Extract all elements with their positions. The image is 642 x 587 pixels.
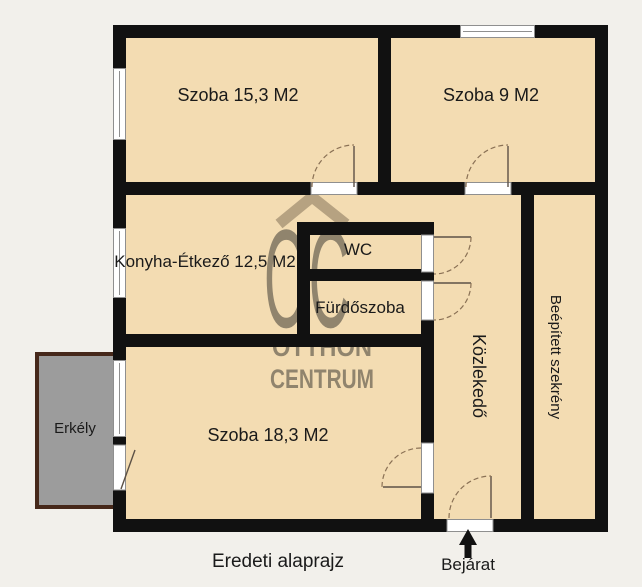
floorplan-image: OC OTTHON CENTRUM <box>0 0 642 587</box>
wall-wc-top <box>297 222 434 235</box>
entrance-label: Bejárat <box>441 555 495 574</box>
wall-kitchen-bedroom <box>126 334 434 347</box>
doorway-entrance <box>447 520 493 532</box>
room-label-szoba-153: Szoba 15,3 M2 <box>177 85 298 105</box>
room-label-erkely: Erkély <box>54 420 96 437</box>
doorway-room9 <box>465 183 511 195</box>
room-label-kozlekedo: Közlekedő <box>469 334 489 418</box>
doorway-room183 <box>422 443 434 493</box>
room-label-szoba-183: Szoba 18,3 M2 <box>207 425 328 445</box>
doorway-room153 <box>311 183 357 195</box>
room-label-szoba-9: Szoba 9 M2 <box>443 85 539 105</box>
watermark-centrum: CENTRUM <box>270 364 374 394</box>
room-label-szekreny: Beépített szekrény <box>547 295 564 420</box>
room-label-konyha: Konyha-Étkező 12,5 M2 <box>114 252 295 271</box>
wall-wc-bath-divider <box>310 269 434 281</box>
doorway-wc <box>422 235 434 272</box>
wall-between-top-rooms <box>378 38 391 182</box>
entrance-arrow-icon <box>459 529 477 558</box>
wall-wc-left <box>297 235 310 347</box>
room-label-furdoszoba: Fürdőszoba <box>315 298 405 317</box>
doorway-bathroom <box>422 281 434 320</box>
wall-wardrobe-left <box>521 182 534 519</box>
caption-eredeti-alaprajz: Eredeti alaprajz <box>212 551 344 572</box>
room-label-wc: WC <box>344 240 372 259</box>
